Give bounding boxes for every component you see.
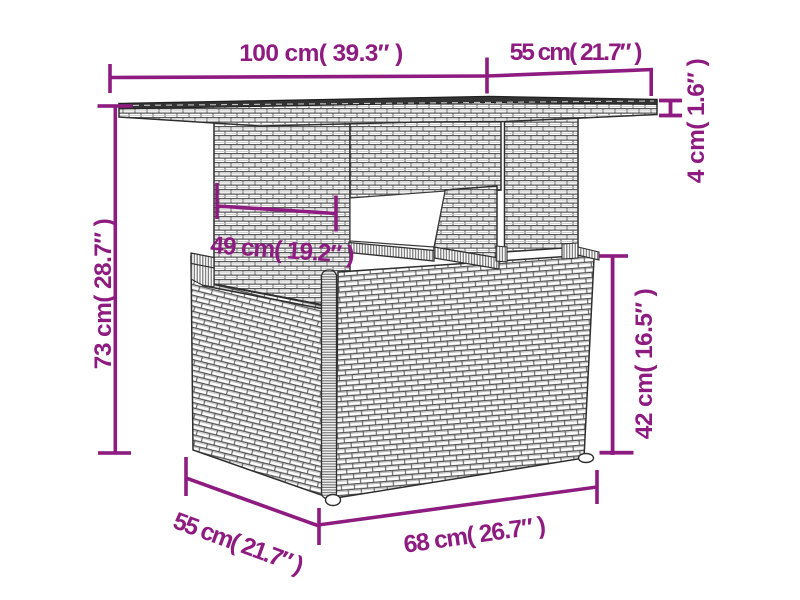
svg-text:100 cm( 39.3″ ): 100 cm( 39.3″ ): [239, 40, 402, 67]
svg-text:55 cm( 21.7″ ): 55 cm( 21.7″ ): [510, 39, 642, 66]
svg-text:4 cm( 1.6″ ): 4 cm( 1.6″ ): [683, 59, 710, 183]
svg-text:42 cm( 16.5″ ): 42 cm( 16.5″ ): [631, 289, 658, 439]
svg-text:73 cm( 28.7″ ): 73 cm( 28.7″ ): [90, 219, 117, 369]
